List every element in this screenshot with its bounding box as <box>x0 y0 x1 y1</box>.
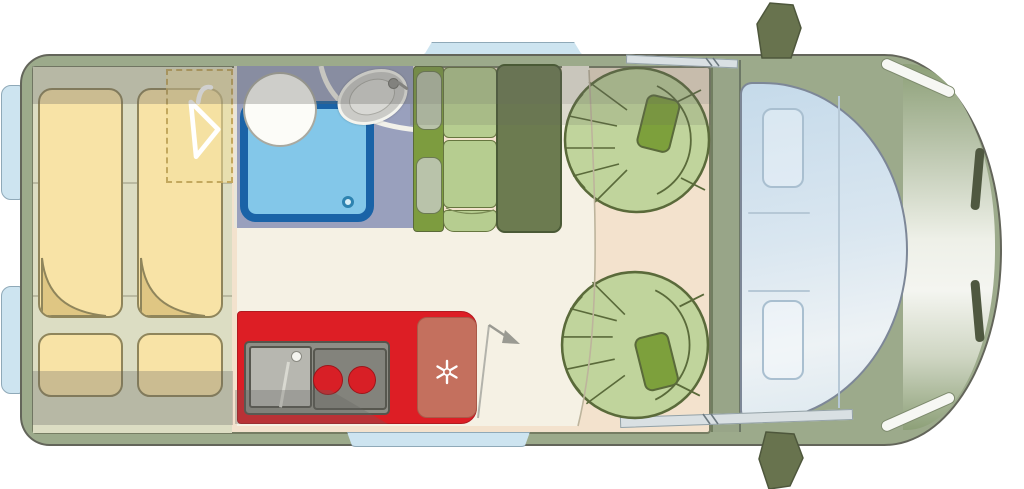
windshield-line <box>838 96 840 408</box>
bench-headrest-2 <box>416 157 442 214</box>
burner-2 <box>348 366 376 394</box>
mattress-left <box>38 88 123 318</box>
shadow-overlay-top <box>32 66 711 104</box>
snowflake-icon <box>434 359 460 385</box>
cab-seat-line-lower <box>748 290 810 292</box>
rear-door-window-lower <box>1 286 21 394</box>
shadow-overlay-bottom <box>32 371 233 425</box>
bench-cushion-2 <box>443 140 497 208</box>
cab-divider <box>711 60 741 432</box>
mattress-fold-icon <box>40 90 123 318</box>
bench-front-edge <box>443 210 497 232</box>
side-mirror-top <box>757 3 801 58</box>
rear-door-window-upper <box>1 85 21 200</box>
swivel-seat-lower <box>558 268 712 422</box>
kitchen-faucet-icon <box>291 351 302 362</box>
fridge <box>417 317 477 418</box>
driver-seat-ghost <box>762 108 804 188</box>
hood <box>903 64 995 430</box>
sliding-door-window <box>347 432 530 447</box>
shadow-overlay-dinette <box>410 104 711 125</box>
floorplan-stage <box>0 0 1024 489</box>
passenger-seat-ghost <box>762 300 804 380</box>
cab-seat-line-upper <box>748 212 810 214</box>
shower-drain-icon <box>342 196 354 208</box>
